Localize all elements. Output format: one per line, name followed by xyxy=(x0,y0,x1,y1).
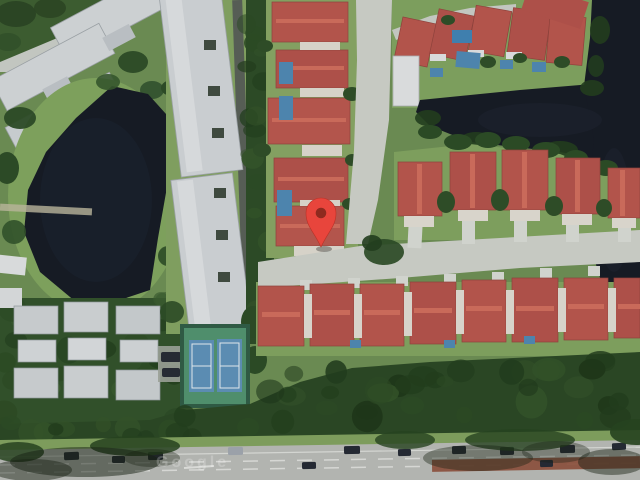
tree-canopy xyxy=(456,407,472,424)
tree xyxy=(96,74,120,90)
roof-ridge xyxy=(620,170,625,216)
house-roof-gray xyxy=(68,338,106,360)
house-roof-gray xyxy=(18,340,56,362)
tree xyxy=(502,136,530,152)
tree xyxy=(444,134,472,150)
tree xyxy=(588,55,604,77)
patio-unit xyxy=(208,86,220,96)
house-wall xyxy=(456,290,464,334)
house-wall xyxy=(304,294,312,338)
tree xyxy=(160,301,184,323)
pond-water xyxy=(40,118,152,282)
garage-front xyxy=(562,214,592,225)
utility-roof xyxy=(0,254,27,275)
tree-canopy xyxy=(400,396,424,414)
utility-roof xyxy=(0,288,22,308)
tree xyxy=(545,196,563,216)
patio-unit xyxy=(218,272,230,282)
tree xyxy=(580,80,604,96)
tree-canopy xyxy=(437,376,454,387)
tree-canopy xyxy=(237,418,259,437)
pool xyxy=(500,60,513,69)
roof-ridge xyxy=(417,164,422,214)
tree-canopy xyxy=(395,375,425,394)
driveway xyxy=(588,266,600,276)
tree-canopy xyxy=(316,401,338,416)
roof-ridge xyxy=(364,310,400,315)
tree xyxy=(415,110,441,126)
car xyxy=(228,447,243,455)
tree-canopy xyxy=(237,14,256,34)
tree xyxy=(437,191,455,213)
roof-ridge xyxy=(414,308,452,313)
roof-ridge xyxy=(470,154,475,208)
tree-canopy xyxy=(48,423,63,435)
satellite-view: Google xyxy=(0,0,640,480)
tree-canopy xyxy=(321,386,339,399)
tree xyxy=(375,431,435,449)
tree xyxy=(554,56,570,68)
tree xyxy=(590,16,610,44)
pond-water xyxy=(478,103,602,137)
tree-canopy xyxy=(245,106,268,125)
house-roof-gray xyxy=(14,306,58,334)
tree-canopy xyxy=(96,417,111,432)
tree xyxy=(480,56,496,68)
tree-shadow xyxy=(423,445,533,471)
house-roof-gray xyxy=(64,302,108,332)
patio-unit xyxy=(214,188,226,198)
house-roof-gray xyxy=(64,366,108,398)
tree-canopy xyxy=(532,358,565,381)
roof-ridge xyxy=(618,304,640,309)
tree-canopy xyxy=(352,401,383,432)
patio-unit xyxy=(216,230,228,240)
tree xyxy=(596,199,612,217)
roof-ridge xyxy=(276,19,344,23)
pool xyxy=(277,190,292,216)
tree-canopy xyxy=(579,359,606,380)
tree xyxy=(362,235,382,251)
pool xyxy=(444,340,455,348)
tree-canopy xyxy=(1,416,21,431)
tree-canopy xyxy=(365,377,393,405)
pin-inner-dot xyxy=(316,208,327,219)
patio-unit xyxy=(212,128,224,138)
roof-ridge xyxy=(466,306,502,311)
tree-canopy xyxy=(284,366,303,382)
house-roof-gray xyxy=(116,306,160,334)
car xyxy=(398,449,411,456)
tree-canopy xyxy=(564,376,594,398)
tree xyxy=(253,143,271,157)
tree xyxy=(418,125,442,139)
house-roof-gray xyxy=(116,370,160,400)
house-wall xyxy=(354,294,362,338)
garage-front xyxy=(510,210,540,221)
tree xyxy=(257,40,273,52)
roof-ridge xyxy=(568,304,604,309)
condo-roof-red xyxy=(468,5,511,57)
house-wall xyxy=(404,292,412,336)
patio-unit xyxy=(204,40,216,50)
driveway xyxy=(540,268,552,278)
tree-canopy xyxy=(271,410,294,434)
tree xyxy=(441,15,455,25)
house-wall xyxy=(506,290,514,334)
roof-ridge xyxy=(262,312,300,317)
satellite-imagery: Google xyxy=(0,0,640,480)
roof-ridge xyxy=(516,306,554,311)
tree xyxy=(118,51,148,73)
house-wall xyxy=(558,288,566,332)
driveway-pad xyxy=(300,42,340,50)
tree xyxy=(2,220,26,244)
tree-canopy xyxy=(609,393,629,411)
driveway xyxy=(462,218,475,244)
tree xyxy=(513,53,527,63)
tree-canopy xyxy=(174,405,196,427)
house-roof-gray xyxy=(120,340,158,362)
pool xyxy=(350,340,361,348)
tree xyxy=(475,132,501,148)
car xyxy=(302,462,316,469)
garage-front xyxy=(612,218,636,228)
roof-ridge xyxy=(522,152,527,208)
car xyxy=(161,352,181,362)
clubhouse-roof xyxy=(393,56,419,106)
driveway xyxy=(407,224,422,249)
tree-canopy xyxy=(325,360,347,384)
tree-canopy xyxy=(519,379,538,396)
tree-canopy xyxy=(256,380,284,404)
pool xyxy=(279,96,293,120)
tree-canopy xyxy=(576,412,593,429)
pin-shadow xyxy=(316,246,332,252)
pool xyxy=(430,68,443,77)
pool xyxy=(455,51,480,69)
roof-ridge xyxy=(575,160,580,212)
pool xyxy=(532,62,546,72)
driveway-pad xyxy=(300,88,344,97)
garage-front xyxy=(404,216,434,227)
car xyxy=(162,368,180,377)
tree-canopy xyxy=(499,359,524,384)
tree-canopy xyxy=(247,208,262,219)
pool xyxy=(524,336,535,344)
tree xyxy=(491,189,509,211)
garage-front xyxy=(458,210,488,221)
pool xyxy=(279,62,293,84)
tree xyxy=(4,107,36,129)
car xyxy=(344,446,360,454)
map-canvas[interactable]: Google xyxy=(0,0,640,480)
roof-ridge xyxy=(314,310,350,315)
driveway-pad xyxy=(302,145,342,156)
tree-canopy xyxy=(237,61,256,73)
pool xyxy=(452,30,472,43)
house-wall xyxy=(608,288,616,332)
pool-deck xyxy=(430,54,446,61)
roof-ridge xyxy=(278,177,344,181)
house-roof-gray xyxy=(14,368,58,398)
google-watermark: Google xyxy=(156,454,229,471)
